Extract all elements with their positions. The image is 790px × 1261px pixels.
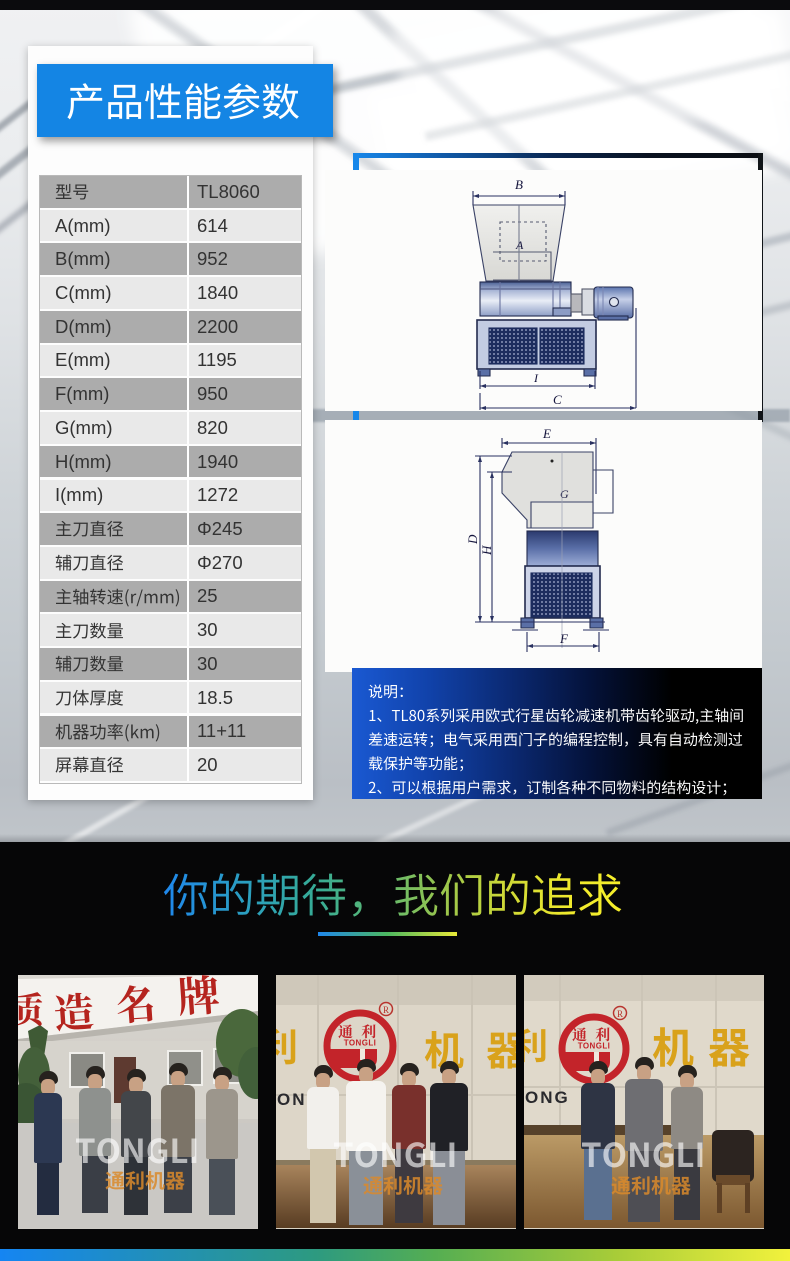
svg-text:I: I (533, 371, 539, 385)
svg-text:R: R (617, 1009, 623, 1019)
svg-text:R: R (383, 1005, 389, 1015)
svg-text:D: D (465, 534, 480, 545)
svg-text:E: E (542, 426, 551, 441)
svg-text:B: B (515, 177, 523, 192)
svg-text:G: G (560, 487, 569, 501)
svg-text:C: C (553, 392, 562, 407)
svg-text:A: A (515, 238, 524, 252)
svg-text:F: F (559, 631, 569, 646)
svg-text:H: H (479, 545, 494, 556)
